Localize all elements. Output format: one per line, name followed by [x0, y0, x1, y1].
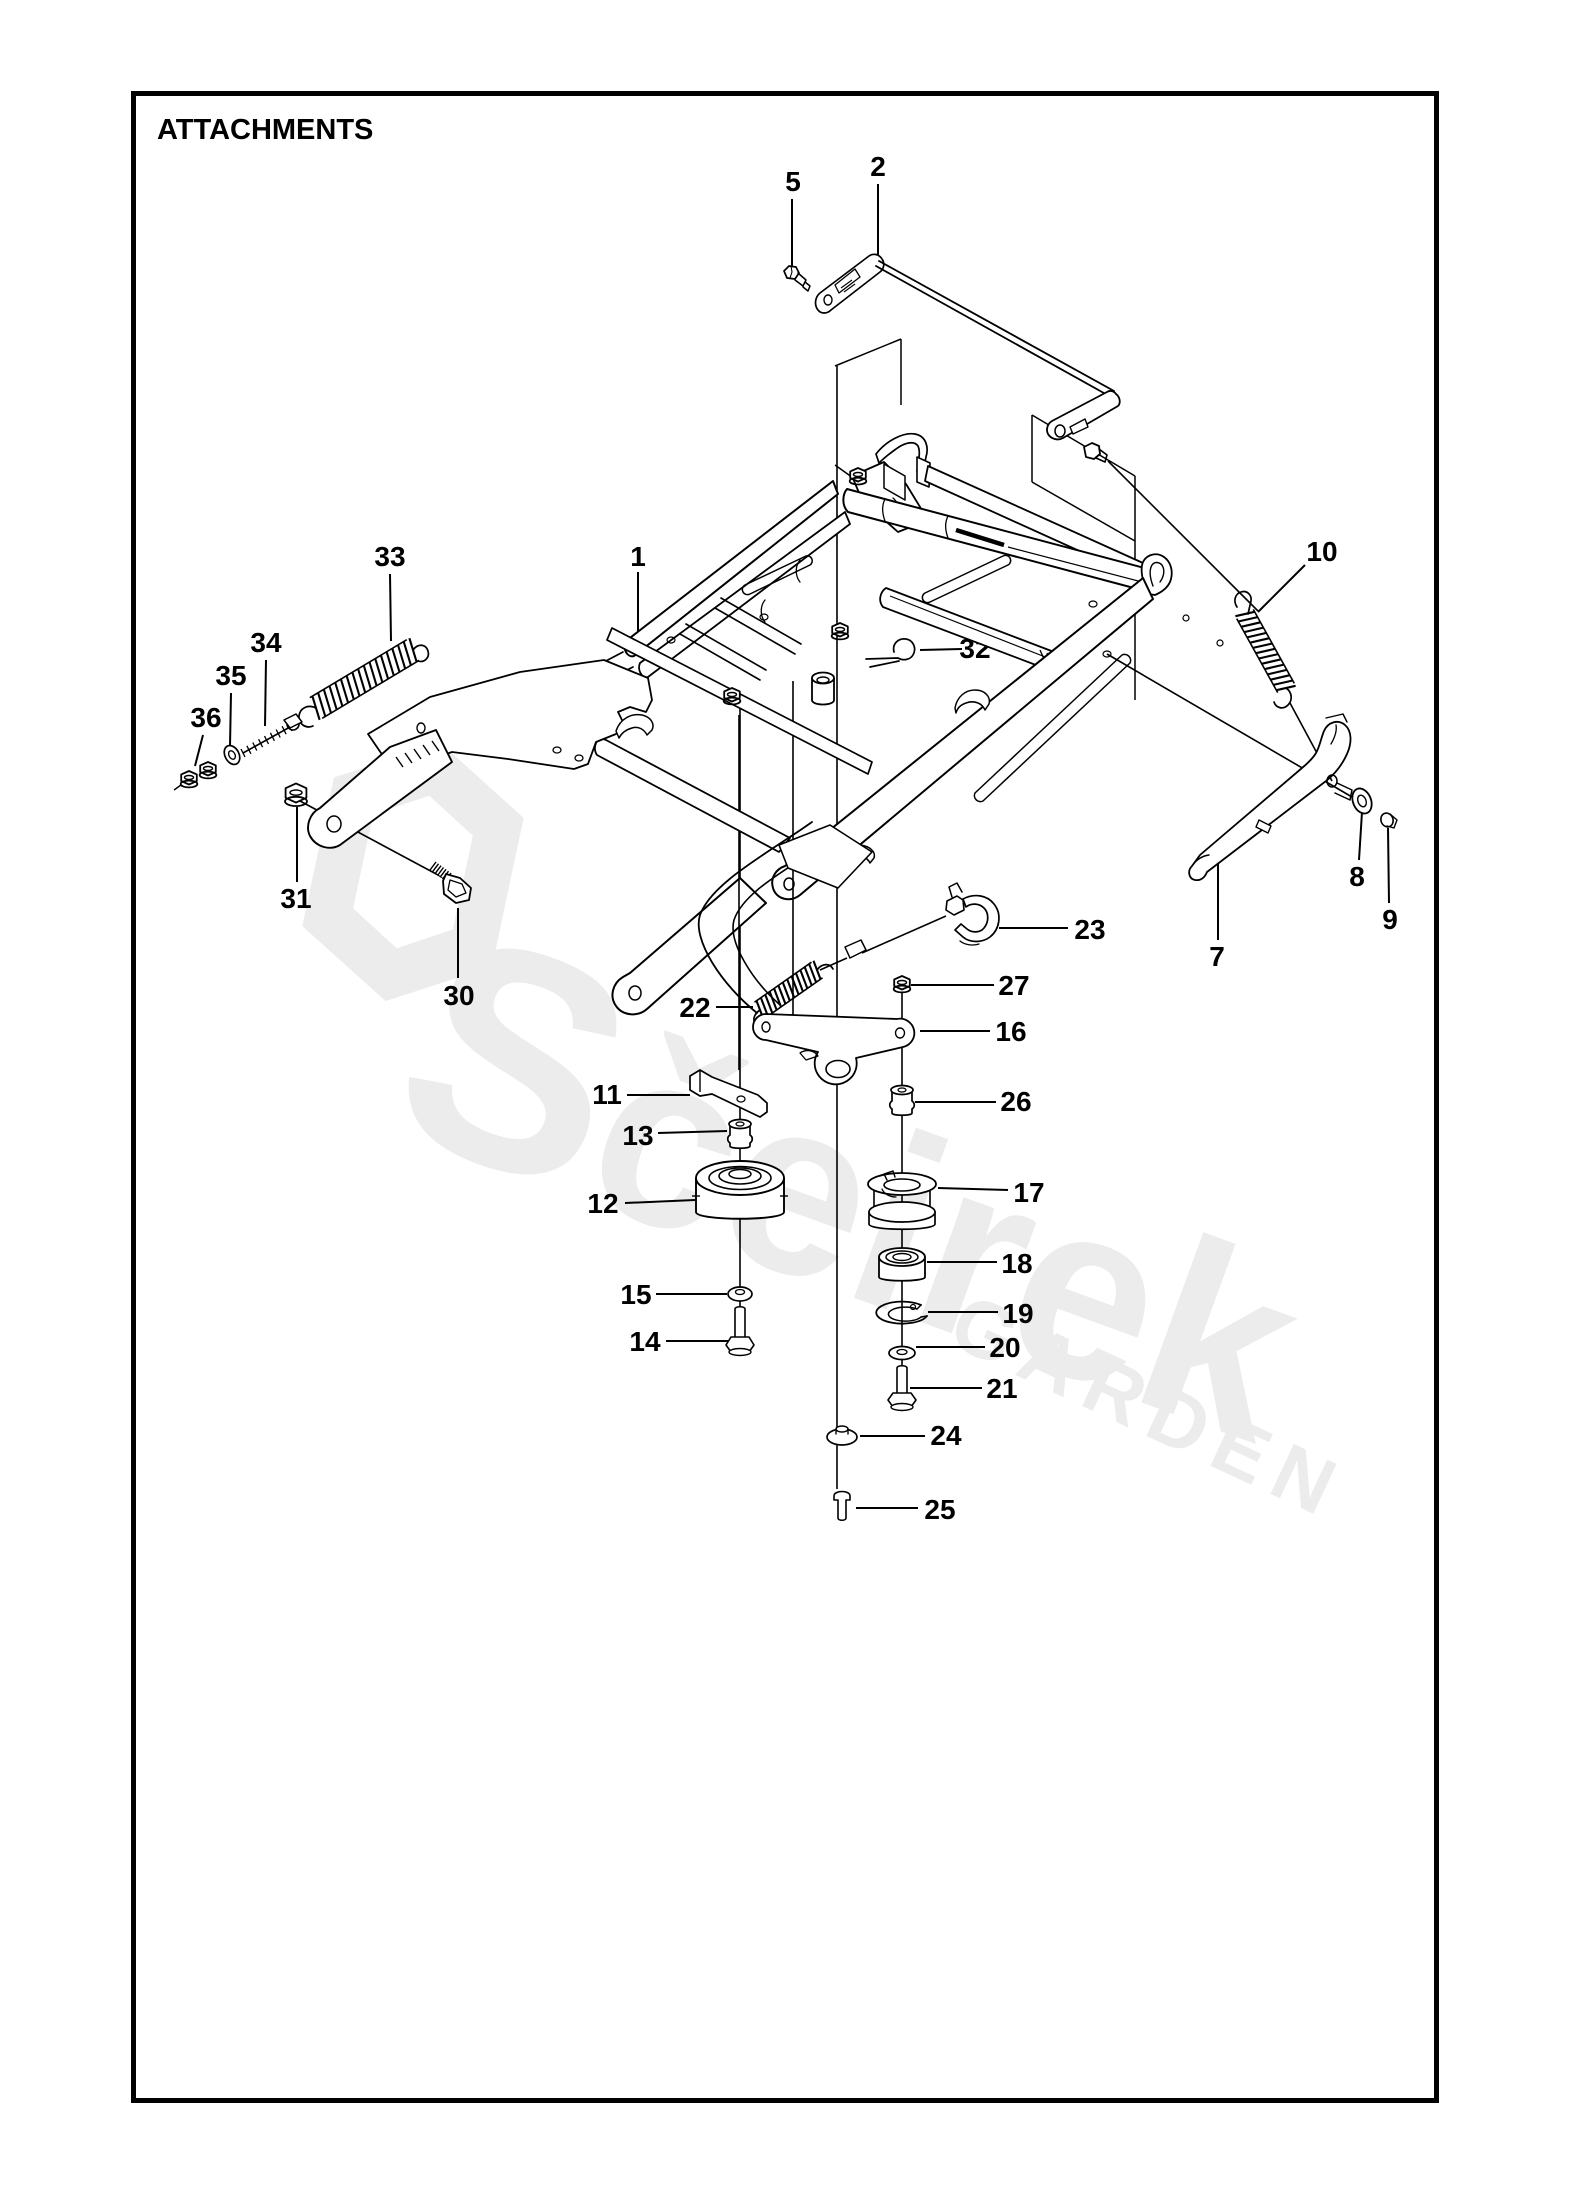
svg-text:35: 35 — [215, 660, 246, 691]
svg-text:19: 19 — [1002, 1298, 1033, 1329]
svg-text:5: 5 — [785, 166, 801, 197]
svg-text:13: 13 — [622, 1120, 653, 1151]
svg-text:24: 24 — [930, 1420, 962, 1451]
svg-text:16: 16 — [995, 1016, 1026, 1047]
svg-text:25: 25 — [924, 1494, 955, 1525]
svg-text:27: 27 — [998, 970, 1029, 1001]
svg-text:14: 14 — [629, 1326, 661, 1357]
svg-text:21: 21 — [986, 1373, 1017, 1404]
svg-text:30: 30 — [443, 980, 474, 1011]
svg-text:17: 17 — [1013, 1177, 1044, 1208]
svg-text:10: 10 — [1306, 536, 1337, 567]
svg-text:26: 26 — [1000, 1086, 1031, 1117]
svg-text:23: 23 — [1074, 914, 1105, 945]
svg-text:22: 22 — [679, 992, 710, 1023]
svg-text:33: 33 — [374, 541, 405, 572]
svg-text:7: 7 — [1209, 941, 1225, 972]
svg-text:18: 18 — [1001, 1248, 1032, 1279]
svg-text:34: 34 — [250, 627, 282, 658]
svg-text:ATTACHMENTS: ATTACHMENTS — [157, 114, 373, 146]
svg-text:31: 31 — [280, 883, 311, 914]
svg-text:9: 9 — [1382, 904, 1398, 935]
svg-text:20: 20 — [989, 1332, 1020, 1363]
svg-text:8: 8 — [1349, 861, 1365, 892]
svg-text:36: 36 — [190, 702, 221, 733]
svg-text:12: 12 — [587, 1188, 618, 1219]
svg-text:1: 1 — [630, 541, 646, 572]
svg-text:11: 11 — [592, 1079, 622, 1110]
svg-text:15: 15 — [620, 1279, 651, 1310]
svg-text:2: 2 — [870, 151, 886, 182]
